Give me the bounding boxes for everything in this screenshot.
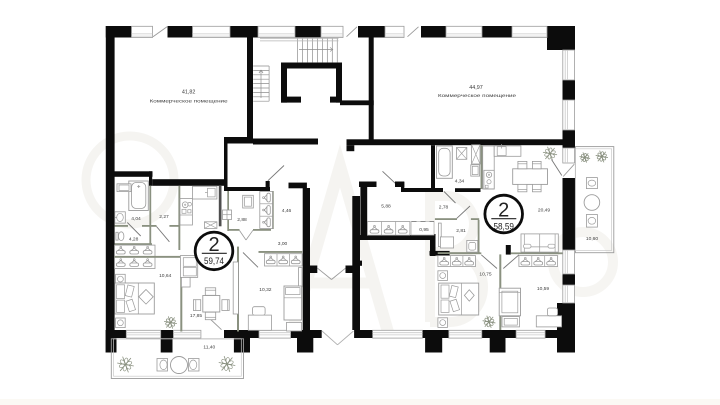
svg-text:44,97: 44,97 xyxy=(469,85,483,91)
svg-text:3,00: 3,00 xyxy=(278,241,288,247)
svg-text:0,95: 0,95 xyxy=(419,227,429,233)
svg-text:11,40: 11,40 xyxy=(203,345,215,351)
svg-text:2,78: 2,78 xyxy=(439,205,449,211)
svg-text:59,74: 59,74 xyxy=(204,256,224,266)
svg-text:10,32: 10,32 xyxy=(259,287,272,293)
svg-text:4,34: 4,34 xyxy=(455,179,465,185)
svg-text:4,28: 4,28 xyxy=(129,236,139,242)
svg-text:2,88: 2,88 xyxy=(237,217,247,223)
svg-text:2,81: 2,81 xyxy=(456,228,466,234)
svg-text:4,46: 4,46 xyxy=(282,208,292,214)
svg-text:17,85: 17,85 xyxy=(190,313,203,319)
svg-text:2,27: 2,27 xyxy=(159,214,169,220)
svg-text:2: 2 xyxy=(208,234,219,256)
svg-text:5,88: 5,88 xyxy=(381,204,391,210)
svg-text:41,82: 41,82 xyxy=(182,90,196,96)
svg-text:10,64: 10,64 xyxy=(159,273,172,279)
svg-text:Коммерческое помещение: Коммерческое помещение xyxy=(438,93,517,98)
svg-text:20,49: 20,49 xyxy=(538,208,551,214)
svg-text:10,75: 10,75 xyxy=(479,272,492,278)
svg-text:58,59: 58,59 xyxy=(493,222,514,232)
svg-text:4,04: 4,04 xyxy=(131,216,141,222)
svg-text:10,59: 10,59 xyxy=(537,286,550,292)
svg-text:Коммерческое помещение: Коммерческое помещение xyxy=(150,99,229,104)
svg-text:10,60: 10,60 xyxy=(586,236,599,242)
